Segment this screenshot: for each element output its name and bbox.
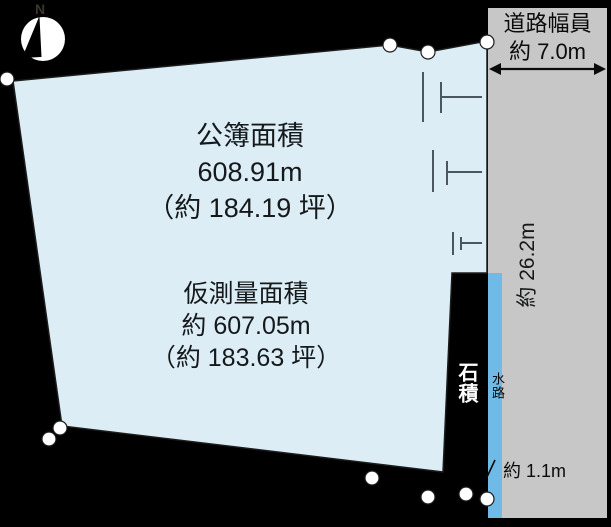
survey-point [421,45,435,59]
waterway-label: 水路 [488,372,507,400]
registered-area-tsubo: （約 184.19 坪） [90,190,410,226]
road-width-line2: 約 7.0m [488,38,607,66]
survey-area-value: 約 607.05m [86,310,406,342]
survey-point [365,471,379,485]
road-width-label: 道路幅員 約 7.0m [488,10,607,66]
road-frontage-length-label: 約 26.2m [511,215,535,315]
land-parcel-polygon [13,41,487,472]
survey-point [459,487,473,501]
survey-area-block: 仮測量面積 約 607.05m （約 183.63 坪） [86,278,406,374]
survey-point [53,421,67,435]
survey-area-tsubo: （約 183.63 坪） [86,342,406,374]
compass-north-label: N [30,1,50,17]
stone-wall-label: 石積 [452,362,481,404]
survey-area-title: 仮測量面積 [86,278,406,310]
road-width-line1: 道路幅員 [488,10,607,38]
registered-area-value: 608.91m [90,154,410,190]
compass-icon [21,17,65,61]
registered-area-title: 公簿面積 [90,118,410,154]
land-plot-diagram: N 道路幅員 約 7.0m 公簿面積 608.91m （約 184.19 坪） … [0,0,611,527]
survey-point [421,490,435,504]
survey-point [42,432,56,446]
survey-point [480,492,494,506]
road-surface [488,8,607,518]
survey-point [383,38,397,52]
registered-area-block: 公簿面積 608.91m （約 184.19 坪） [90,118,410,226]
survey-point [0,72,14,86]
waterway-width-label: 約 1.1m [503,457,566,483]
